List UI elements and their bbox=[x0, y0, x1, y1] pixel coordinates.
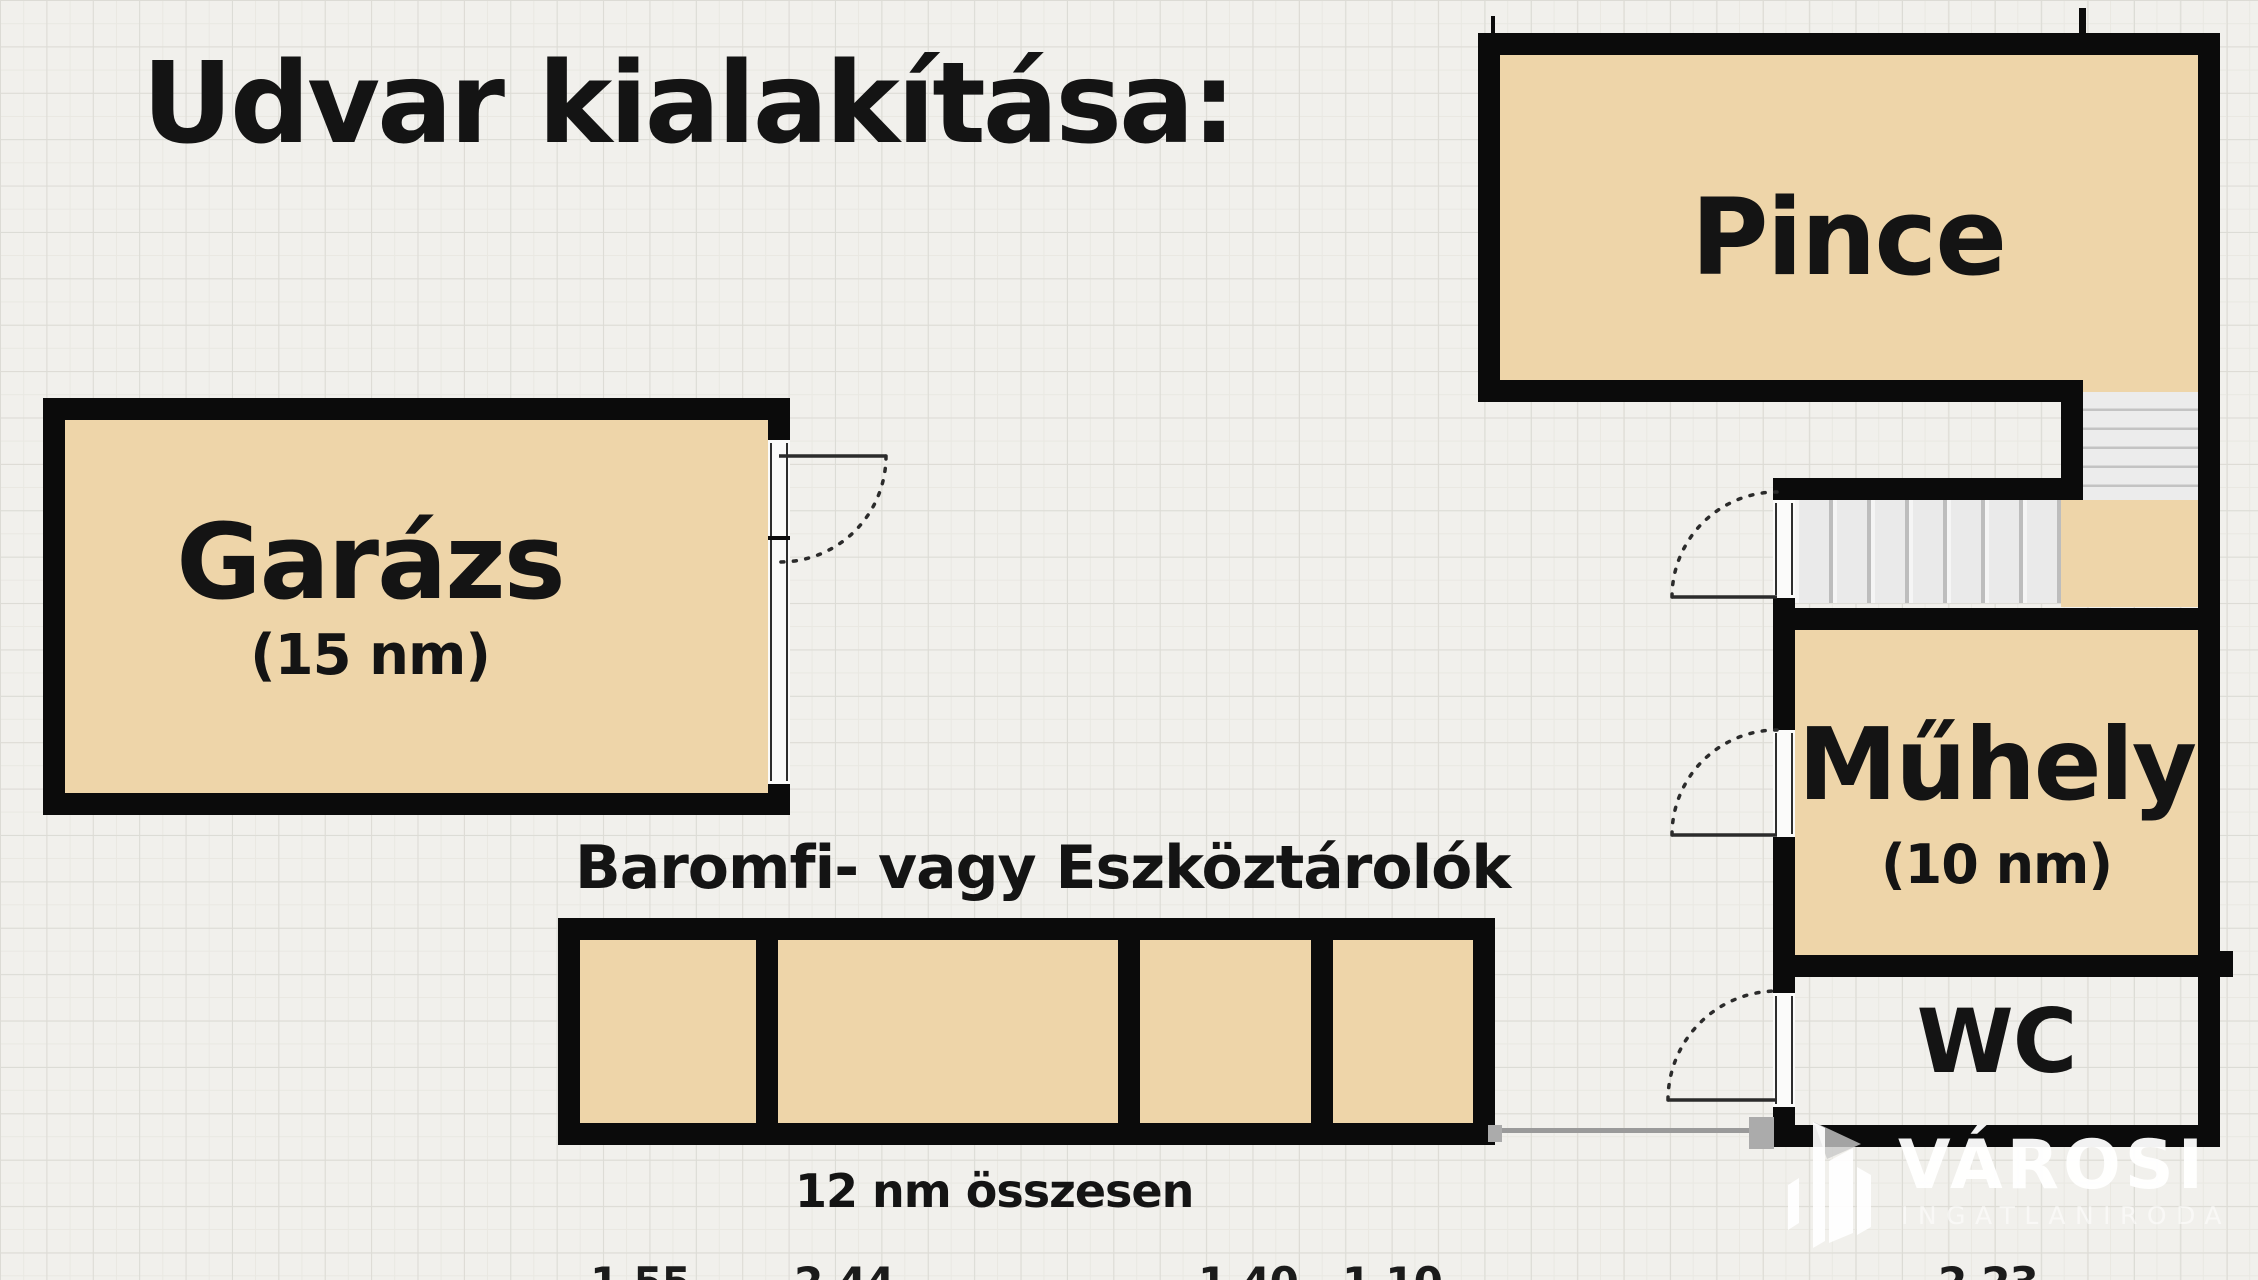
agency-logo-brand: VÁROSI bbox=[1898, 1132, 2207, 1200]
stair-door-opening bbox=[1773, 500, 1795, 598]
page-title: Udvar kialakítása: bbox=[142, 48, 1233, 160]
fence-connector bbox=[1488, 1125, 1502, 1142]
workshop-size-label: (10 nm) bbox=[1773, 838, 2220, 892]
garage-size-label: (15 nm) bbox=[100, 628, 640, 684]
stairs-lower-flight bbox=[1795, 500, 2061, 603]
wc-door-arc bbox=[1668, 991, 1777, 1100]
workshop-wall-notch bbox=[2220, 951, 2233, 977]
storage-total-label: 12 nm összesen bbox=[795, 1168, 1193, 1214]
garage-label: Garázs bbox=[100, 510, 640, 614]
garage-door-tick bbox=[768, 536, 790, 540]
garage-door-jamb bbox=[770, 443, 788, 781]
dimension-label: 1.40 bbox=[1198, 1262, 1298, 1280]
stair-door-jamb bbox=[1775, 503, 1793, 595]
storage-cell bbox=[778, 940, 1118, 1123]
workshop-door-arc bbox=[1672, 730, 1777, 835]
floor-plan-canvas: Udvar kialakítása: Garázs (15 nm) Pince … bbox=[0, 0, 2258, 1280]
dimension-label: 2.44 bbox=[794, 1262, 894, 1280]
cellar-label: Pince bbox=[1598, 185, 2098, 291]
dimension-label: 1.55 bbox=[590, 1262, 690, 1280]
wall-tick-left bbox=[1491, 16, 1495, 34]
stair-corridor-wall-horizontal bbox=[1773, 478, 2083, 500]
wc-label: WC bbox=[1773, 998, 2220, 1086]
fence-post bbox=[1749, 1117, 1774, 1149]
storage-cell bbox=[1333, 940, 1473, 1123]
agency-logo-subtitle: INGATLANIRODA bbox=[1901, 1203, 2231, 1228]
stair-landing bbox=[2061, 500, 2198, 607]
workshop-label: Műhely bbox=[1773, 715, 2220, 815]
garage-door-arc bbox=[780, 456, 886, 562]
stair-door-arc bbox=[1672, 492, 1777, 597]
storage-row-label: Baromfi- vagy Eszköztárolók bbox=[575, 838, 1510, 898]
garage-door-opening bbox=[768, 440, 790, 784]
storage-cell bbox=[580, 940, 756, 1123]
fence-line bbox=[1497, 1128, 1752, 1133]
dimension-label: 2.23 bbox=[1938, 1262, 2038, 1280]
dimension-label: 1.10 bbox=[1342, 1262, 1442, 1280]
storage-row bbox=[558, 918, 1495, 1145]
wall-tick-right bbox=[2079, 8, 2086, 34]
stairs-upper-flight bbox=[2083, 392, 2198, 503]
storage-cell bbox=[1140, 940, 1311, 1123]
